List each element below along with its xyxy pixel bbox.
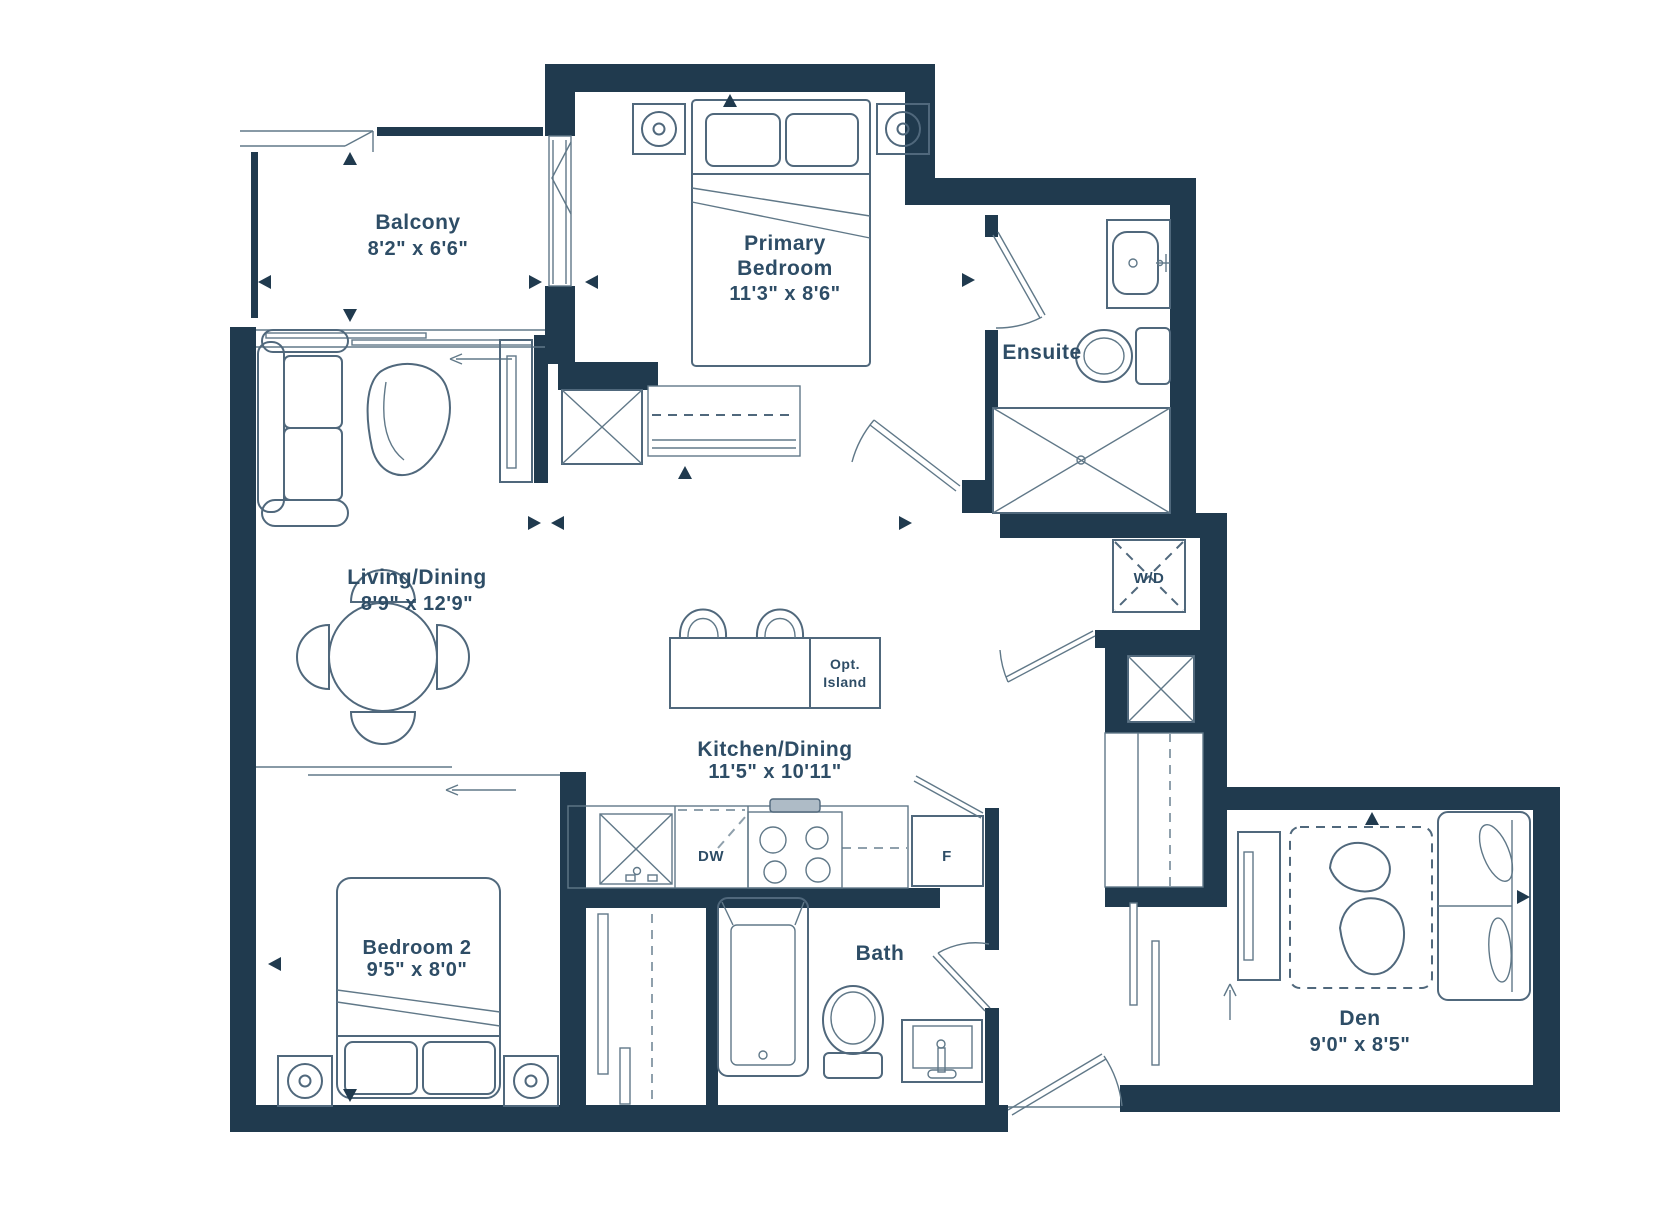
ensuite-sink bbox=[1107, 220, 1170, 308]
room-label-living: Living/Dining 8'9" x 12'9" bbox=[347, 566, 486, 615]
room-label-balcony: Balcony 8'2" x 6'6" bbox=[368, 211, 469, 260]
kitchen-name: Kitchen/Dining bbox=[697, 738, 852, 761]
sliding-partition bbox=[256, 767, 560, 795]
bed-2 bbox=[337, 878, 500, 1098]
kitchen: Opt. Island Kitchen/Dining 11'5" x 10'11… bbox=[568, 610, 983, 889]
den-pocket-door bbox=[1130, 903, 1236, 1065]
balcony-dims: 8'2" x 6'6" bbox=[368, 238, 469, 260]
den-sofa bbox=[1438, 812, 1530, 1000]
dim-arrow-right-kitchen bbox=[528, 516, 541, 530]
island-label-1: Opt. bbox=[830, 656, 860, 672]
room-label-den: Den 9'0" x 8'5" bbox=[1310, 1007, 1411, 1056]
bath: Bath bbox=[718, 898, 990, 1082]
bedroom2-dims: 9'5" x 8'0" bbox=[367, 959, 468, 981]
washer-dryer-label: W/D bbox=[1134, 570, 1165, 587]
primary-dims: 11'3" x 8'6" bbox=[729, 283, 840, 305]
room-label-kitchen: Kitchen/Dining 11'5" x 10'11" bbox=[697, 738, 852, 783]
dim-arrow-right-hall bbox=[962, 273, 975, 287]
den-rug bbox=[1290, 827, 1432, 988]
dim-arrow-up bbox=[343, 152, 357, 165]
primary-name-2: Bedroom bbox=[737, 257, 833, 280]
balcony-sliding-door bbox=[256, 330, 545, 364]
fridge-label: F bbox=[942, 848, 952, 865]
bedroom2-name: Bedroom 2 bbox=[363, 937, 472, 959]
ensuite-toilet bbox=[1076, 328, 1170, 384]
den-dims: 9'0" x 8'5" bbox=[1310, 1034, 1411, 1056]
nightstand-left bbox=[633, 104, 685, 154]
floorplan-page: Balcony 8'2" x 6'6" Primary Bedroom 1 bbox=[0, 0, 1679, 1212]
foyer-closet bbox=[1105, 733, 1203, 887]
dishwasher: DW bbox=[678, 810, 746, 865]
column-shaft bbox=[562, 390, 642, 464]
dim-arrow-up-closet bbox=[678, 466, 692, 479]
sofa-living bbox=[258, 330, 348, 526]
den-name: Den bbox=[1339, 1007, 1380, 1030]
bedroom-2: Bedroom 2 9'5" x 8'0" bbox=[256, 767, 560, 1106]
primary-bedroom-door bbox=[852, 420, 960, 491]
ensuite-door bbox=[993, 232, 1045, 328]
dim-arrow-down bbox=[343, 309, 357, 322]
hall-closet bbox=[598, 914, 652, 1104]
balcony-name: Balcony bbox=[375, 211, 460, 234]
bath-door bbox=[933, 943, 990, 1011]
entry-door bbox=[1008, 1054, 1122, 1115]
nightstand-2-right bbox=[504, 1056, 558, 1106]
lounge-chair bbox=[368, 364, 450, 475]
room-label-bedroom2: Bedroom 2 9'5" x 8'0" bbox=[363, 937, 472, 981]
kitchen-sink bbox=[600, 814, 672, 884]
kitchen-counter bbox=[568, 806, 908, 888]
bath-sink bbox=[902, 1020, 982, 1082]
dishwasher-label: DW bbox=[698, 848, 724, 865]
den: Den 9'0" x 8'5" bbox=[1208, 812, 1530, 1056]
dim-arrow-right-den bbox=[1517, 890, 1530, 904]
dim-arrow-left-kitchen bbox=[551, 516, 564, 530]
primary-name-1: Primary bbox=[744, 232, 826, 255]
dim-arrow-left-bed2 bbox=[268, 957, 281, 971]
dim-arrow-up-den bbox=[1365, 812, 1379, 825]
living-dining: Living/Dining 8'9" x 12'9" bbox=[258, 330, 564, 744]
dim-arrow-down-bed2 bbox=[343, 1089, 357, 1102]
kitchen-island: Opt. Island bbox=[670, 610, 880, 709]
tv-console bbox=[500, 340, 532, 482]
mech-shaft bbox=[1128, 656, 1194, 722]
balcony-window bbox=[549, 136, 571, 286]
dim-arrow-left-2 bbox=[585, 275, 598, 289]
bathtub bbox=[718, 898, 808, 1076]
stove bbox=[748, 799, 842, 888]
island-label-2: Island bbox=[823, 674, 866, 690]
kitchen-dims: 11'5" x 10'11" bbox=[708, 761, 841, 783]
room-label-primary-bedroom: Primary Bedroom 11'3" x 8'6" bbox=[729, 232, 840, 305]
living-name: Living/Dining bbox=[347, 566, 486, 589]
dim-arrow-right bbox=[529, 275, 542, 289]
nightstand-2-left bbox=[278, 1056, 332, 1106]
dim-arrow-right-wd bbox=[899, 516, 912, 530]
den-console bbox=[1238, 832, 1280, 980]
balcony: Balcony 8'2" x 6'6" bbox=[240, 127, 598, 364]
den-table bbox=[1330, 843, 1404, 974]
bath-toilet bbox=[823, 986, 883, 1078]
bath-label: Bath bbox=[856, 942, 905, 965]
living-dims: 8'9" x 12'9" bbox=[361, 593, 473, 615]
ensuite-label: Ensuite bbox=[1002, 341, 1081, 364]
bedroom-closet bbox=[648, 386, 800, 456]
dim-arrow-left bbox=[258, 275, 271, 289]
floorplan-drawing: Balcony 8'2" x 6'6" Primary Bedroom 1 bbox=[0, 0, 1679, 1212]
ensuite-shower bbox=[993, 408, 1170, 513]
fridge: F bbox=[912, 776, 983, 886]
laundry-door bbox=[1000, 631, 1095, 682]
primary-bedroom: Primary Bedroom 11'3" x 8'6" bbox=[562, 94, 960, 491]
